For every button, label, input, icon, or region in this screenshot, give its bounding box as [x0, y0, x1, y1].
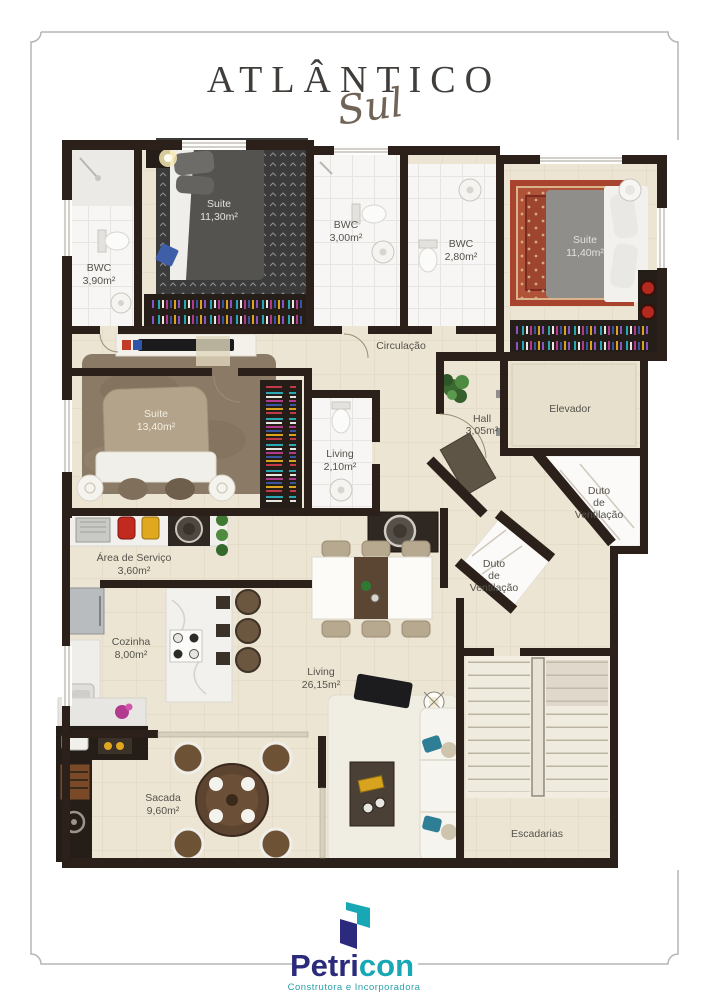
window	[62, 400, 72, 472]
label-lavabo-area: 2,10m²	[324, 461, 357, 473]
living-furniture	[328, 673, 464, 863]
label-living-area: 26,15m²	[302, 679, 341, 691]
label-duto-right-1: Duto	[588, 485, 610, 497]
stair-flight-left	[468, 660, 530, 792]
stairs	[466, 656, 610, 798]
balcony-chair	[261, 743, 291, 773]
window	[62, 646, 72, 706]
petricon-logo-icon	[340, 902, 370, 949]
label-duto-left-3: Ventilação	[470, 582, 519, 594]
suite3-nightstand	[77, 475, 103, 501]
window	[657, 208, 667, 268]
bbq-tray	[98, 738, 132, 754]
suite2-furniture	[510, 179, 658, 356]
petricon-tagline: Construtora e Incorporadora	[288, 982, 421, 993]
label-escadarias: Escadarias	[511, 828, 563, 840]
label-suite1: Suite	[207, 198, 231, 210]
balcony-chair	[261, 829, 291, 859]
balcony-glass-door	[158, 732, 308, 737]
label-bwc3: BWC	[449, 238, 474, 250]
window	[334, 146, 388, 155]
fridge	[66, 588, 104, 634]
label-suite3: Suite	[144, 408, 168, 420]
herb-pot	[216, 544, 228, 556]
label-duto-left-2: de	[488, 570, 500, 582]
label-hall: Hall	[473, 413, 491, 425]
suite3-pouf	[165, 478, 195, 500]
canister	[142, 517, 159, 539]
poster-canvas: ATLÂNTICO Sul	[0, 0, 709, 1003]
suite3-pouf	[118, 478, 148, 500]
suite1-furniture	[144, 138, 308, 330]
living-glass-door	[320, 788, 325, 858]
label-suite2-area: 11,40m²	[566, 247, 604, 259]
label-bwc2-area: 3,00m²	[330, 232, 363, 244]
balcony-chair	[173, 829, 203, 859]
label-suite3-area: 13,40m²	[137, 421, 176, 433]
floorplan: BWC 3,90m² Suite 11,30m² BWC 3,00m² BWC …	[56, 138, 709, 870]
coffee-table	[350, 762, 394, 826]
dining-chair	[322, 621, 350, 637]
label-bwc1-area: 3,90m²	[83, 275, 116, 287]
table-runner	[354, 557, 388, 619]
label-duto-right-3: Ventilação	[575, 509, 624, 521]
dining-chair	[402, 541, 430, 557]
dining-set	[312, 541, 432, 637]
title-script: Sul	[334, 80, 406, 135]
stair-rail	[532, 658, 544, 796]
floorplan-poster: ATLÂNTICO Sul	[0, 0, 709, 1003]
dining-chair	[402, 621, 430, 637]
label-circulacao: Circulação	[376, 340, 426, 352]
label-elevador: Elevador	[549, 403, 591, 415]
label-bwc1: BWC	[87, 262, 112, 274]
label-cozinha-area: 8,00m²	[115, 649, 148, 661]
window	[62, 200, 72, 256]
herb-pot	[216, 529, 228, 541]
suite3-furniture	[77, 334, 302, 508]
logo-block: Petricon Construtora e Incorporadora	[288, 902, 421, 993]
label-cozinha: Cozinha	[112, 636, 151, 648]
window	[182, 140, 246, 150]
dining-chair	[362, 621, 390, 637]
balcony-chair	[173, 743, 203, 773]
label-duto-right-2: de	[593, 497, 605, 509]
label-living: Living	[307, 666, 335, 678]
stool	[236, 648, 260, 672]
window	[540, 155, 622, 164]
kettle	[118, 517, 135, 539]
label-lavabo: Living	[326, 448, 354, 460]
door-sill	[196, 336, 230, 366]
label-servico-area: 3,60m²	[118, 565, 151, 577]
label-suite1-area: 11,30m²	[200, 211, 238, 223]
label-sacada: Sacada	[145, 792, 181, 804]
label-servico: Área de Serviço	[97, 551, 172, 564]
stool	[236, 590, 260, 614]
label-hall-area: 3,05m²	[466, 425, 499, 437]
title-block: ATLÂNTICO Sul	[207, 59, 501, 134]
label-suite2: Suite	[573, 234, 597, 246]
suite3-nightstand	[209, 475, 235, 501]
petricon-wordmark: Petricon	[290, 948, 414, 983]
label-bwc3-area: 2,80m²	[445, 251, 478, 263]
label-bwc2: BWC	[334, 219, 359, 231]
dining-chair	[362, 541, 390, 557]
label-duto-left-1: Duto	[483, 558, 505, 570]
label-sacada-area: 9,60m²	[147, 805, 180, 817]
stool	[236, 619, 260, 643]
dining-chair	[322, 541, 350, 557]
